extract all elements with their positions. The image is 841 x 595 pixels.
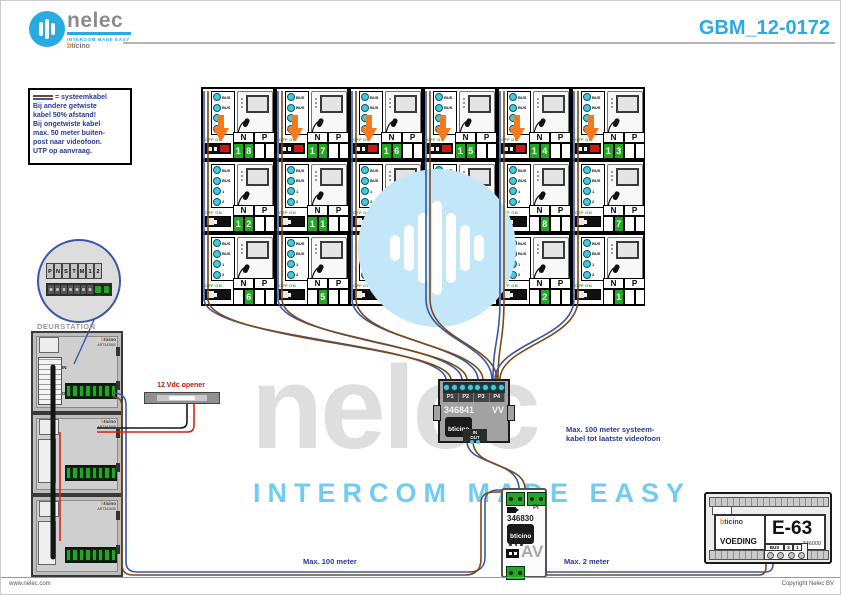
- bus-terminal-block: BUS BUS 1 2: [359, 237, 383, 281]
- art-number: ART342560: [97, 343, 116, 347]
- empty-cell: [339, 289, 350, 305]
- screw-terminal-icon: [435, 166, 443, 174]
- terminal-label: 2: [518, 272, 520, 277]
- address-digit-cell: 4: [392, 289, 403, 305]
- down-arrow-icon: [361, 115, 377, 143]
- model-e63: E-63: [772, 518, 812, 540]
- empty-cell: [402, 216, 413, 232]
- address-config-table: N P 9: [455, 205, 497, 232]
- videophone-handset-unit: [385, 237, 421, 282]
- column-n-header: N: [233, 132, 254, 143]
- column-n-header: N: [529, 205, 550, 216]
- column-n-header: N: [529, 132, 550, 143]
- terminal-label: BUS: [370, 241, 378, 246]
- videophone-screen: [246, 241, 269, 259]
- column-p-header: P: [254, 205, 275, 216]
- door-terminal-block: [38, 357, 62, 405]
- address-config-table: N P 1 7: [307, 132, 349, 159]
- address-digit-cell: 3: [614, 143, 625, 159]
- screw-terminal-icon: [287, 93, 295, 101]
- videophone-handset-unit: [459, 91, 495, 136]
- door-module-3: bticino ART342600: [31, 495, 123, 577]
- terminal-label: BUS: [444, 168, 452, 173]
- terminal-label: 1: [222, 262, 224, 267]
- note-line: post naar videofoon.: [33, 138, 128, 147]
- terminal-label: 2: [444, 272, 446, 277]
- column-p-header: P: [254, 132, 275, 143]
- dip-switch-label: OFF ON: [353, 210, 370, 215]
- empty-cell: [635, 289, 646, 305]
- terminal-label: BUS: [296, 178, 304, 183]
- screw-terminal-icon: [435, 104, 443, 112]
- column-p-header: P: [624, 205, 645, 216]
- screw-terminal-icon: [213, 250, 221, 258]
- screw-terminal-icon: [361, 93, 369, 101]
- terminal-label: 1: [518, 262, 520, 267]
- footer-url: www.nelec.com: [9, 581, 51, 587]
- empty-cell: [339, 143, 350, 159]
- empty-cell: [265, 289, 276, 305]
- note-line: UTP op aanvraag.: [33, 147, 128, 156]
- terminal-tab: N: [54, 263, 62, 279]
- videophone-handset-unit: [237, 164, 273, 209]
- dip-switch-label: OFF ON: [279, 283, 296, 288]
- videophone-screen: [320, 168, 343, 186]
- dip-switch: [575, 143, 601, 154]
- column-p-header: P: [550, 278, 571, 289]
- down-arrow-icon: [435, 115, 451, 143]
- bus-terminal-block: BUS BUS 1 2: [285, 237, 309, 281]
- address-digit-cell: 8: [540, 216, 551, 232]
- column-p-header: P: [328, 278, 349, 289]
- column-p-header: P: [328, 132, 349, 143]
- videophone-unit-5: BUS BUS 1 2 OFF ON N P: [275, 233, 349, 306]
- jumper-icon: [506, 549, 519, 558]
- address-digit-cell: 6: [392, 143, 403, 159]
- dip-switch: [353, 289, 379, 300]
- empty-cell: [476, 216, 487, 232]
- videophone-unit-7: BUS BUS 1 2 OFF ON N P: [571, 160, 645, 233]
- converter-346830: PI 346830 bticino AV: [501, 488, 547, 578]
- videophone-screen: [394, 168, 417, 186]
- voeding-label: VOEDING: [720, 537, 757, 546]
- terminal-label: BUS: [592, 95, 600, 100]
- address-config-table: N P 4: [381, 278, 423, 305]
- button-module-icon: [39, 419, 59, 435]
- screw-terminal-icon: [213, 166, 221, 174]
- art-number: ART342600: [97, 425, 116, 429]
- dip-switch: [205, 143, 231, 154]
- videophone-unit-16: BUS BUS 1 2 OFF ON N P: [349, 87, 423, 160]
- screw-terminal-icon: [361, 104, 369, 112]
- note-line: Bij andere getwiste: [33, 102, 128, 111]
- column-n-header: N: [603, 132, 624, 143]
- note-line: max. 50 meter buiten-: [33, 129, 128, 138]
- terminal-tab: P: [46, 263, 54, 279]
- videophone-unit-8: BUS BUS 1 2 OFF ON N P: [497, 160, 571, 233]
- door-opener: [144, 392, 220, 404]
- terminal-label: 1: [296, 189, 298, 194]
- screw-terminal-icon: [583, 177, 591, 185]
- port-p2: P2: [459, 393, 475, 402]
- column-p-header: P: [476, 278, 497, 289]
- address-digit-cell: 5: [318, 289, 329, 305]
- videophone-unit-3: BUS BUS 1 2 OFF ON N P: [423, 233, 497, 306]
- terminal-label: BUS: [518, 241, 526, 246]
- videophone-unit-11: BUS BUS 1 2 OFF ON N P: [275, 160, 349, 233]
- dip-switch-label: OFF ON: [205, 283, 222, 288]
- empty-cell: [476, 143, 487, 159]
- terminal-label: BUS: [222, 178, 230, 183]
- bus-label: 2: [784, 544, 793, 551]
- screw-terminal-icon: [583, 260, 591, 268]
- dip-switch-label: OFF ON: [575, 283, 592, 288]
- terminal-label: 2: [444, 199, 446, 204]
- terminal-label: BUS: [518, 168, 526, 173]
- terminal-label: BUS: [296, 95, 304, 100]
- button-column: [38, 439, 56, 483]
- terminal-label: BUS: [592, 105, 600, 110]
- videophone-screen: [320, 241, 343, 259]
- dip-switch-label: OFF ON: [205, 210, 222, 215]
- terminal-tab: 1: [86, 263, 94, 279]
- terminal-label: BUS: [444, 251, 452, 256]
- terminal-label: BUS: [370, 95, 378, 100]
- note-line: kabel 50% afstand!: [33, 111, 128, 120]
- videophone-screen: [394, 95, 417, 113]
- address-config-table: N P 6: [233, 278, 275, 305]
- screw-strip: [46, 283, 112, 296]
- terminal-label: BUS: [592, 168, 600, 173]
- bticino-label: bticino: [101, 337, 116, 342]
- videophone-screen: [616, 241, 639, 259]
- screw-terminal-icon: [361, 250, 369, 258]
- note-line: Bij ongetwiste kabel: [33, 120, 128, 129]
- empty-cell: [635, 143, 646, 159]
- videophone-buttons: [611, 244, 613, 254]
- terminal-tab: S: [62, 263, 70, 279]
- empty-cell: [550, 143, 561, 159]
- address-digit-cell: 4: [540, 143, 551, 159]
- address-digit-cell: 1: [307, 143, 318, 159]
- terminal-tabs: P N S T M 1 2: [46, 263, 102, 279]
- column-n-header: N: [455, 278, 476, 289]
- empty-cell: [328, 289, 339, 305]
- screw-terminal-icon: [583, 187, 591, 195]
- address-digit-cell: 6: [244, 289, 255, 305]
- power-supply-e63: bticino VOEDING E-63 346000 BUS 2 1: [704, 492, 832, 564]
- videophone-handset-unit: [311, 237, 347, 282]
- down-arrow-icon: [583, 115, 599, 143]
- empty-cell: [339, 216, 350, 232]
- terminal-label: 2: [296, 272, 298, 277]
- column-p-header: P: [550, 132, 571, 143]
- terminal-label: BUS: [222, 95, 230, 100]
- screw-terminal-icon: [583, 239, 591, 247]
- videophone-buttons: [537, 98, 539, 108]
- screw-terminal-icon: [287, 239, 295, 247]
- dip-switch: [501, 289, 527, 300]
- empty-cell: [254, 143, 265, 159]
- screw-terminal-icon: [509, 93, 517, 101]
- terminal-label: BUS: [370, 168, 378, 173]
- column-p-header: P: [402, 132, 423, 143]
- screw-terminal-icon: [287, 177, 295, 185]
- terminal-label: BUS: [518, 178, 526, 183]
- videophone-buttons: [463, 171, 465, 181]
- dip-switch: [353, 143, 379, 154]
- address-digit-cell: [307, 289, 318, 305]
- green-terminal-strip: [65, 465, 117, 481]
- terminal-label: 1: [222, 189, 224, 194]
- brand-name: nelec: [67, 9, 123, 33]
- videophone-screen: [468, 168, 491, 186]
- screw-terminal-icon: [213, 104, 221, 112]
- videophone-unit-9: BUS BUS 1 2 OFF ON N P: [423, 160, 497, 233]
- screw-terminal-icon: [213, 198, 221, 206]
- address-digit-cell: 3: [466, 289, 477, 305]
- videophone-screen: [542, 95, 565, 113]
- column-n-header: N: [603, 278, 624, 289]
- brand-underline: [67, 32, 131, 35]
- terminal-label: 2: [222, 272, 224, 277]
- screw-terminal-icon: [361, 198, 369, 206]
- screw-terminal-icon: [361, 166, 369, 174]
- bticino-label: bticino: [101, 501, 116, 506]
- address-digit-cell: [381, 289, 392, 305]
- screw-terminal-icon: [361, 271, 369, 279]
- door-station: bticino ART342560 IN OUT bticino ART3426…: [31, 331, 123, 577]
- videophone-buttons: [537, 171, 539, 181]
- videophone-screen: [320, 95, 343, 113]
- videophone-buttons: [537, 244, 539, 254]
- terminal-label: 1: [370, 262, 372, 267]
- videophone-buttons: [389, 171, 391, 181]
- address-config-table: N P 1 3: [603, 132, 645, 159]
- empty-cell: [550, 216, 561, 232]
- floor-distributor-346841: P1 P2 P3 P4 346841 VV bticino IN OUT: [438, 379, 510, 443]
- videophone-screen: [468, 95, 491, 113]
- empty-cell: [413, 143, 424, 159]
- address-digit-cell: 2: [244, 216, 255, 232]
- videophone-handset-unit: [607, 91, 643, 136]
- screw-terminal-icon: [509, 104, 517, 112]
- screw-terminal-icon: [213, 177, 221, 185]
- address-config-table: N P 3: [455, 278, 497, 305]
- screw-terminal-icon: [435, 93, 443, 101]
- videophone-screen: [246, 168, 269, 186]
- videophone-buttons: [315, 171, 317, 181]
- terminal-label: BUS: [518, 251, 526, 256]
- terminal-label: BUS: [370, 178, 378, 183]
- screw-terminal-icon: [361, 187, 369, 195]
- terminal-label: BUS: [296, 251, 304, 256]
- green-terminal-strip: [65, 547, 117, 563]
- address-digit-cell: 5: [466, 143, 477, 159]
- dip-switch-label: OFF ON: [427, 283, 444, 288]
- empty-cell: [402, 289, 413, 305]
- column-n-header: N: [455, 132, 476, 143]
- terminal-label: BUS: [518, 105, 526, 110]
- bus-terminal-block: BUS BUS 1 2: [359, 164, 383, 208]
- terminal-label: BUS: [296, 105, 304, 110]
- address-digit-cell: 8: [244, 143, 255, 159]
- dip-switch: [427, 289, 453, 300]
- column-n-header: N: [603, 205, 624, 216]
- screw-terminal-icon: [583, 104, 591, 112]
- videophone-unit-12: BUS BUS 1 2 OFF ON N P: [201, 160, 275, 233]
- address-config-table: N P 8: [529, 205, 571, 232]
- screw-terminal-icon: [435, 187, 443, 195]
- empty-cell: [402, 143, 413, 159]
- videophone-buttons: [463, 98, 465, 108]
- videophone-screen: [246, 95, 269, 113]
- videophone-screen: [542, 168, 565, 186]
- bus-terminal-block: BUS BUS 1 2: [433, 164, 457, 208]
- videophone-handset-unit: [607, 237, 643, 282]
- column-n-header: N: [233, 205, 254, 216]
- videophone-screen: [394, 241, 417, 259]
- address-digit-cell: 1: [614, 289, 625, 305]
- screw-terminal-icon: [509, 187, 517, 195]
- down-arrow-icon: [509, 115, 525, 143]
- videophone-grid: BUS BUS 1 2 OFF ON N P: [201, 87, 645, 306]
- empty-cell: [561, 216, 572, 232]
- column-p-header: P: [476, 132, 497, 143]
- bus-label: 1: [793, 544, 802, 551]
- column-p-header: P: [624, 278, 645, 289]
- empty-cell: [635, 216, 646, 232]
- bus-terminal-block: BUS BUS 1 2: [581, 237, 605, 281]
- videophone-unit-10: BUS BUS 1 2 OFF ON N P: [349, 160, 423, 233]
- dip-switch-label: OFF ON: [427, 210, 444, 215]
- empty-cell: [254, 216, 265, 232]
- terminal-label: BUS: [592, 241, 600, 246]
- screw-terminal-icon: [435, 198, 443, 206]
- address-digit-cell: 7: [318, 143, 329, 159]
- terminal-label: BUS: [444, 95, 452, 100]
- terminal-label: 1: [592, 262, 594, 267]
- column-n-header: N: [233, 278, 254, 289]
- empty-cell: [550, 289, 561, 305]
- column-p-header: P: [476, 205, 497, 216]
- opener-label: 12 Vdc opener: [145, 382, 217, 389]
- videophone-handset-unit: [237, 91, 273, 136]
- address-digit-cell: 2: [540, 289, 551, 305]
- address-digit-cell: 1: [307, 216, 318, 232]
- terminal-tab: 2: [94, 263, 102, 279]
- screw-terminal-icon: [213, 271, 221, 279]
- empty-cell: [487, 216, 498, 232]
- address-digit-cell: 1: [529, 143, 540, 159]
- screw-terminal-icon: [435, 250, 443, 258]
- screw-terminal-icon: [213, 187, 221, 195]
- dip-switch: [575, 216, 601, 227]
- column-n-header: N: [381, 132, 402, 143]
- videophone-buttons: [611, 171, 613, 181]
- footer-divider: [1, 577, 841, 578]
- videophone-screen: [468, 241, 491, 259]
- videophone-screen: [616, 168, 639, 186]
- terminal-label: BUS: [222, 105, 230, 110]
- terminal-label: BUS: [222, 168, 230, 173]
- terminal-label: BUS: [222, 241, 230, 246]
- empty-cell: [476, 289, 487, 305]
- dip-switch-label: OFF ON: [353, 283, 370, 288]
- screw-terminal-icon: [509, 260, 517, 268]
- screw-terminal-icon: [509, 198, 517, 206]
- note-legend: = systeemkabel: [55, 94, 107, 101]
- dip-switch-label: OFF ON: [575, 210, 592, 215]
- terminal-label: 2: [592, 272, 594, 277]
- bticino-label: bticino: [101, 419, 116, 424]
- empty-cell: [328, 216, 339, 232]
- bus-terminal-block: BUS BUS 1 2: [507, 237, 531, 281]
- address-config-table: N P 2: [529, 278, 571, 305]
- bus-terminal-block: BUS BUS 1 2: [507, 164, 531, 208]
- system-cable-note: = systeemkabel Bij andere getwiste kabel…: [28, 88, 132, 165]
- bus-terminal-block: BUS BUS 1 2: [211, 164, 235, 208]
- videophone-unit-4: BUS BUS 1 2 OFF ON N P: [349, 233, 423, 306]
- videophone-buttons: [389, 244, 391, 254]
- terminal-label: BUS: [296, 168, 304, 173]
- column-n-header: N: [307, 278, 328, 289]
- terminal-label: 2: [370, 272, 372, 277]
- port-p4: P4: [490, 393, 506, 402]
- screw-terminal-icon: [583, 250, 591, 258]
- empty-cell: [561, 289, 572, 305]
- header-divider: [123, 42, 835, 44]
- screw-terminal-icon: [583, 93, 591, 101]
- address-config-table: N P 1 1: [307, 205, 349, 232]
- down-arrow-icon: [287, 115, 303, 143]
- empty-cell: [624, 216, 635, 232]
- empty-cell: [265, 216, 276, 232]
- videophone-unit-1: BUS BUS 1 2 OFF ON N P: [571, 233, 645, 306]
- empty-cell: [413, 216, 424, 232]
- videophone-handset-unit: [533, 164, 569, 209]
- dip-switch: [575, 289, 601, 300]
- screw-terminal-icon: [509, 239, 517, 247]
- dip-switch-label: OFF ON: [279, 210, 296, 215]
- videophone-buttons: [241, 171, 243, 181]
- nelec-logo-icon: [29, 11, 65, 47]
- av-label: AV: [521, 542, 543, 562]
- videophone-unit-13: BUS BUS 1 2 OFF ON N P: [571, 87, 645, 160]
- videophone-unit-2: BUS BUS 1 2 OFF ON N P: [497, 233, 571, 306]
- address-digit-cell: [529, 216, 540, 232]
- bus-terminal-block: BUS BUS 1 2: [581, 164, 605, 208]
- camera-icon: [507, 507, 516, 513]
- dip-switch: [501, 143, 527, 154]
- videophone-handset-unit: [385, 164, 421, 209]
- bus-label: BUS: [765, 544, 784, 551]
- address-digit-cell: 7: [614, 216, 625, 232]
- address-digit-cell: [233, 289, 244, 305]
- terminal-label: 2: [370, 199, 372, 204]
- empty-cell: [487, 143, 498, 159]
- videophone-buttons: [241, 98, 243, 108]
- address-digit-cell: [603, 216, 614, 232]
- column-p-header: P: [402, 278, 423, 289]
- max-100m-label: Max. 100 meter: [303, 557, 357, 566]
- terminal-label: 2: [222, 199, 224, 204]
- bus-terminal-block: BUS BUS 1 2: [433, 237, 457, 281]
- in-out-terminal: IN OUT: [463, 429, 487, 442]
- bus-terminal: BUS 2 1: [764, 543, 808, 560]
- address-digit-cell: 9: [466, 216, 477, 232]
- pi-label: PI: [533, 505, 539, 511]
